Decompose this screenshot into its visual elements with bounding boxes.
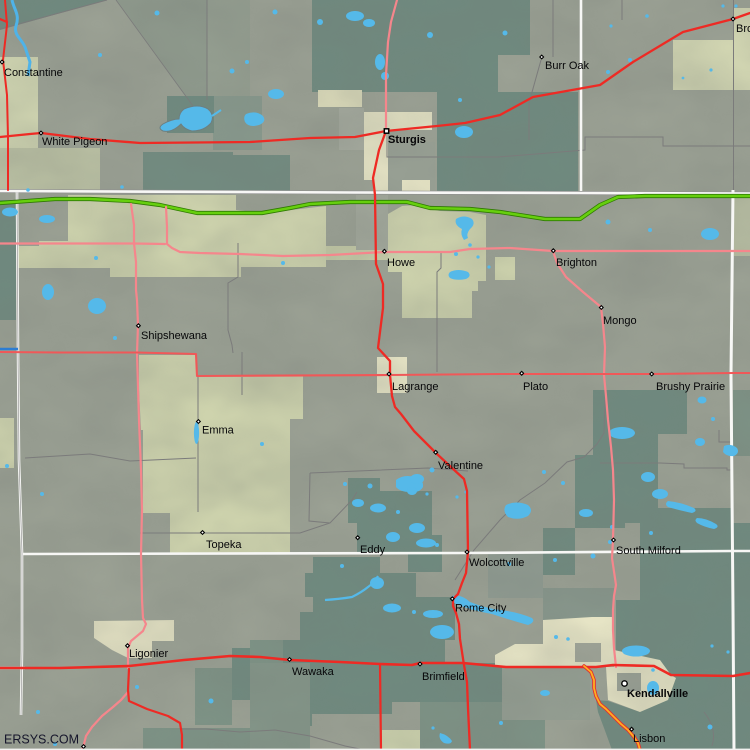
svg-text:Shipshewana: Shipshewana bbox=[141, 330, 208, 342]
svg-text:Constantine: Constantine bbox=[4, 67, 63, 79]
svg-text:Valentine: Valentine bbox=[438, 460, 483, 472]
svg-text:Ligonier: Ligonier bbox=[129, 648, 168, 660]
svg-text:Burr Oak: Burr Oak bbox=[545, 60, 590, 72]
svg-text:Brushy Prairie: Brushy Prairie bbox=[656, 381, 725, 393]
svg-text:Lisbon: Lisbon bbox=[633, 733, 665, 745]
svg-text:Bro: Bro bbox=[736, 23, 750, 35]
svg-text:Sturgis: Sturgis bbox=[388, 134, 426, 146]
svg-text:Mongo: Mongo bbox=[603, 315, 637, 327]
svg-text:Lagrange: Lagrange bbox=[392, 381, 439, 393]
svg-text:Plato: Plato bbox=[523, 381, 548, 393]
svg-text:Howe: Howe bbox=[387, 257, 415, 269]
svg-text:ERSYS.COM: ERSYS.COM bbox=[4, 733, 79, 747]
svg-text:Brighton: Brighton bbox=[556, 257, 597, 269]
svg-text:Wawaka: Wawaka bbox=[292, 666, 335, 678]
svg-text:Brimfield: Brimfield bbox=[422, 671, 465, 683]
svg-text:White Pigeon: White Pigeon bbox=[42, 136, 107, 148]
svg-text:Rome City: Rome City bbox=[455, 603, 507, 615]
svg-text:Eddy: Eddy bbox=[360, 544, 386, 556]
svg-text:Emma: Emma bbox=[202, 425, 235, 437]
svg-text:Topeka: Topeka bbox=[206, 539, 242, 551]
svg-text:Wolcottville: Wolcottville bbox=[469, 557, 524, 569]
svg-text:South Milford: South Milford bbox=[616, 545, 681, 557]
svg-text:Kendallville: Kendallville bbox=[627, 688, 688, 700]
